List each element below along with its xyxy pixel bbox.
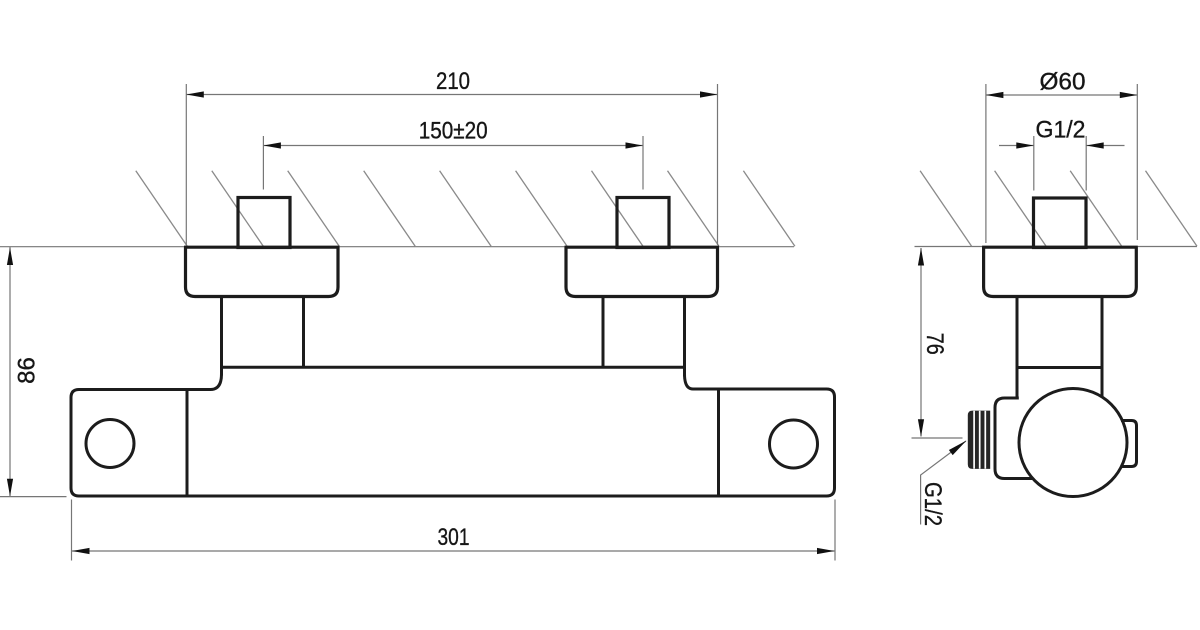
svg-text:G1/2: G1/2 <box>1036 117 1086 144</box>
svg-text:G1/2: G1/2 <box>919 482 946 526</box>
svg-text:86: 86 <box>14 357 41 384</box>
svg-text:210: 210 <box>436 68 470 95</box>
svg-text:Ø60: Ø60 <box>1040 69 1086 96</box>
svg-text:150±20: 150±20 <box>419 118 488 145</box>
svg-text:301: 301 <box>438 524 470 551</box>
svg-text:76: 76 <box>921 333 948 355</box>
